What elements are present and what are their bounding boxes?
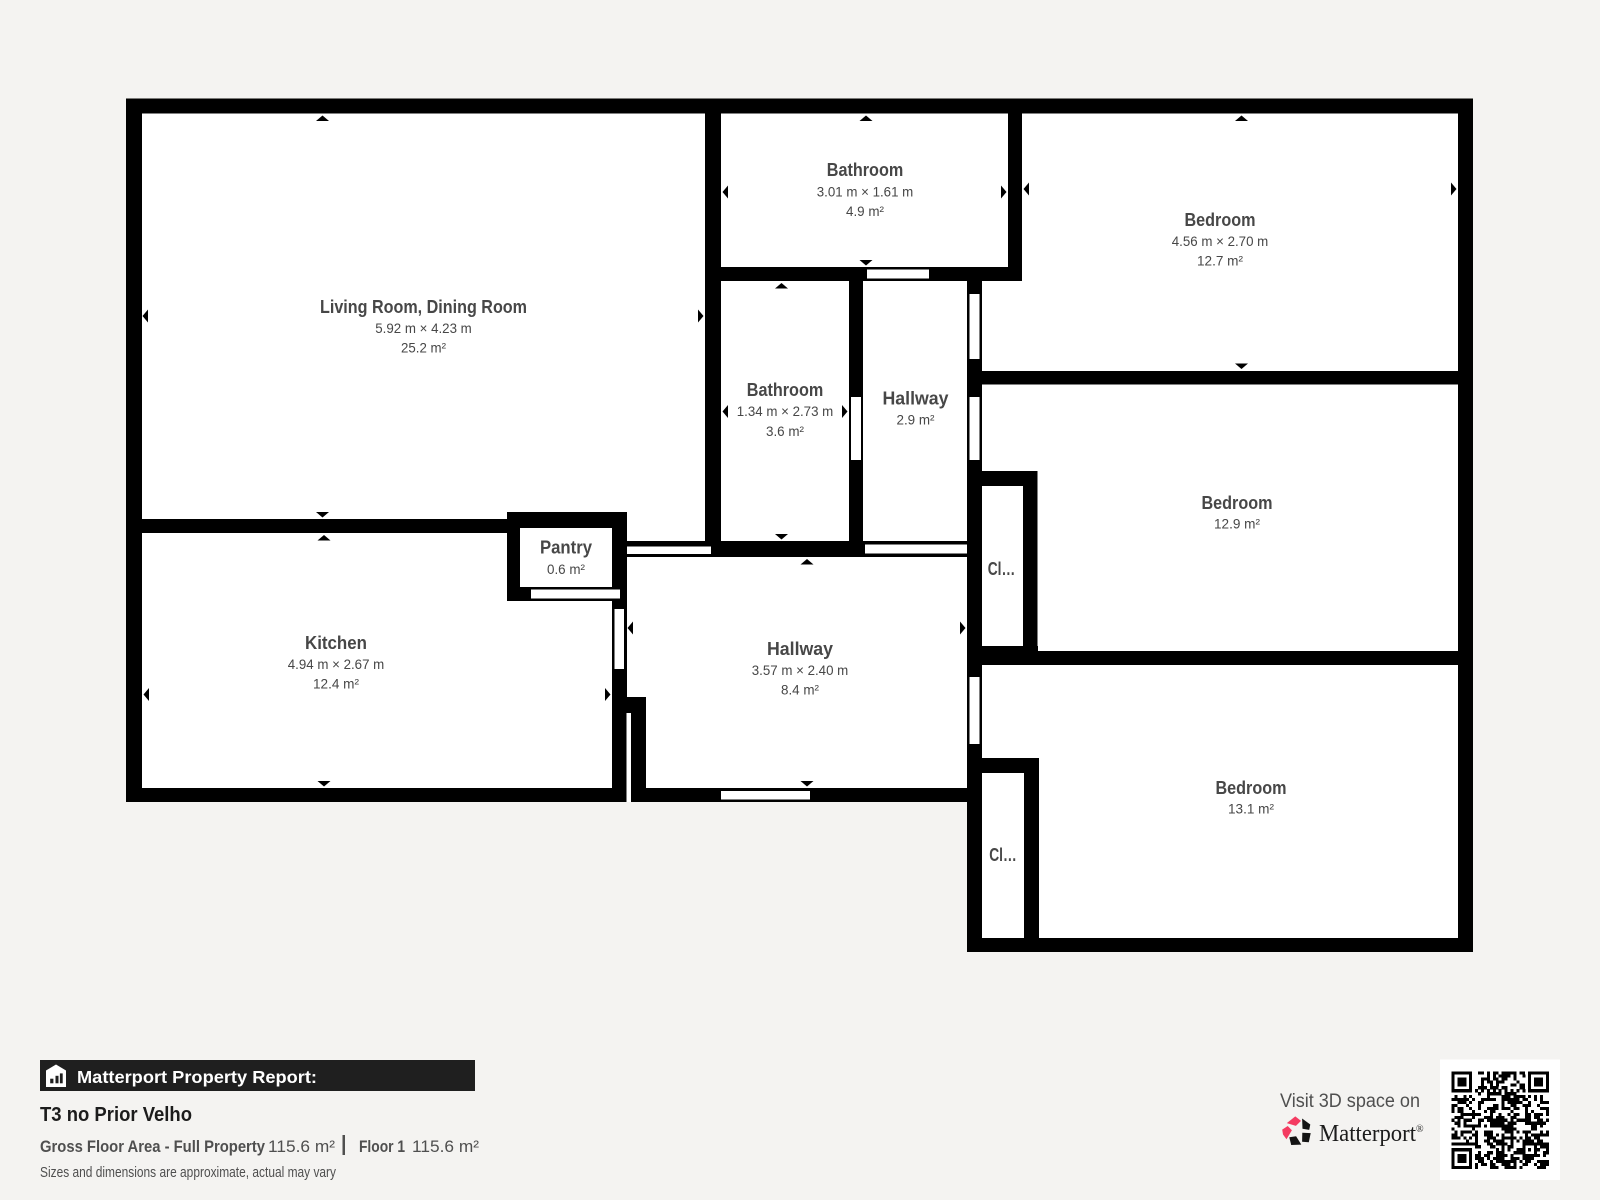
svg-text:Kitchen: Kitchen — [305, 633, 367, 653]
svg-text:Hallway: Hallway — [767, 639, 833, 659]
svg-text:13.1 m²: 13.1 m² — [1228, 801, 1274, 817]
svg-text:Hallway: Hallway — [883, 389, 949, 409]
svg-text:4.56 m × 2.70 m: 4.56 m × 2.70 m — [1172, 233, 1269, 249]
svg-text:12.9 m²: 12.9 m² — [1214, 516, 1260, 532]
svg-text:Bedroom: Bedroom — [1185, 210, 1256, 230]
svg-text:Matterport®: Matterport® — [1319, 1121, 1424, 1147]
svg-text:Bedroom: Bedroom — [1202, 493, 1273, 513]
svg-text:Bathroom: Bathroom — [747, 380, 824, 400]
svg-text:Bathroom: Bathroom — [827, 160, 904, 180]
svg-text:12.4 m²: 12.4 m² — [313, 676, 359, 692]
svg-text:5.92 m × 4.23 m: 5.92 m × 4.23 m — [375, 320, 472, 336]
svg-text:1.34 m × 2.73 m: 1.34 m × 2.73 m — [737, 403, 834, 419]
svg-text:Pantry: Pantry — [540, 538, 592, 558]
svg-text:4.94 m × 2.67 m: 4.94 m × 2.67 m — [288, 656, 385, 672]
svg-text:Cl…: Cl… — [988, 559, 1016, 579]
svg-text:T3 no Prior Velho: T3 no Prior Velho — [40, 1103, 192, 1126]
svg-text:12.7 m²: 12.7 m² — [1197, 253, 1243, 269]
svg-text:115.6 m²: 115.6 m² — [268, 1137, 335, 1156]
svg-text:Cl…: Cl… — [989, 845, 1017, 865]
svg-text:3.6 m²: 3.6 m² — [766, 423, 804, 439]
svg-text:Visit 3D space on: Visit 3D space on — [1280, 1091, 1420, 1112]
svg-text:0.6 m²: 0.6 m² — [547, 561, 585, 577]
svg-text:3.57 m × 2.40 m: 3.57 m × 2.40 m — [752, 662, 849, 678]
svg-text:25.2 m²: 25.2 m² — [401, 340, 446, 356]
svg-text:8.4 m²: 8.4 m² — [781, 682, 819, 698]
svg-text:Sizes and dimensions are appro: Sizes and dimensions are approximate, ac… — [40, 1165, 337, 1181]
svg-text:4.9 m²: 4.9 m² — [846, 203, 884, 219]
svg-text:Bedroom: Bedroom — [1216, 778, 1287, 798]
svg-text:3.01 m × 1.61 m: 3.01 m × 1.61 m — [817, 184, 914, 200]
svg-text:2.9 m²: 2.9 m² — [897, 412, 935, 428]
svg-text:Gross Floor Area - Full Proper: Gross Floor Area - Full Property — [40, 1137, 265, 1156]
svg-text:Living Room, Dining Room: Living Room, Dining Room — [320, 297, 527, 317]
svg-text:115.6 m²: 115.6 m² — [412, 1137, 479, 1156]
svg-text:Matterport Property Report:: Matterport Property Report: — [77, 1067, 317, 1087]
svg-text:Floor 1: Floor 1 — [359, 1137, 405, 1156]
